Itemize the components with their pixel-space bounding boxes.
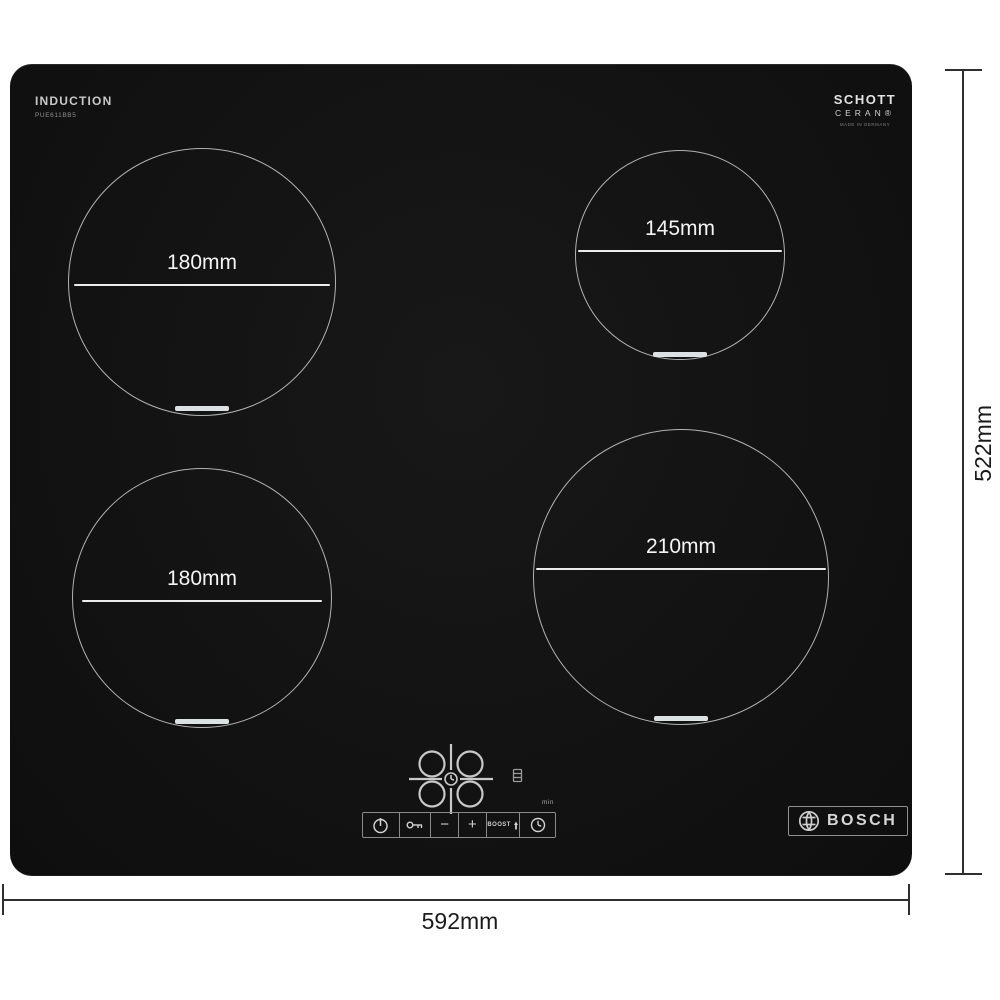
dimension-tick [945, 69, 982, 71]
zone-notch-mark [654, 716, 708, 721]
schott-ceran-logo: SCHOTT CERAN® MADE IN GERMANY [810, 92, 920, 127]
schott-logo-text: SCHOTT [810, 92, 920, 107]
bosch-logo-plate: BOSCH [788, 806, 908, 836]
dimension-tick [908, 884, 910, 915]
zone-diameter-label: 210mm [533, 535, 829, 559]
zone-ring [72, 468, 332, 728]
zone-ring [575, 150, 785, 360]
indicator-icon [512, 768, 523, 783]
bosch-emblem-icon [798, 810, 820, 832]
model-number: PUE611BB5 [35, 112, 112, 119]
zone-notch-mark [653, 352, 707, 357]
product-dimension-diagram: INDUCTION PUE611BB5 SCHOTT CERAN® MADE I… [0, 0, 1000, 1000]
power-key [363, 813, 399, 837]
minus-key: − [430, 813, 458, 837]
plus-label: + [468, 817, 477, 834]
boost-label: BOOST [487, 822, 510, 828]
key-icon [406, 820, 424, 830]
zone-diameter-label: 180mm [72, 567, 332, 591]
induction-branding: INDUCTION PUE611BB5 [35, 94, 112, 119]
boost-key: BOOST [486, 813, 520, 837]
zone-diameter-label: 180mm [68, 251, 336, 275]
dimension-tick [945, 873, 982, 875]
timer-unit-label: min [510, 799, 554, 806]
zone-selector-diagram [401, 741, 501, 817]
timer-key [519, 813, 555, 837]
glass-origin-text: MADE IN GERMANY [810, 122, 920, 127]
boost-icon [513, 821, 519, 830]
width-dimension-line [3, 899, 909, 901]
bosch-logo-text: BOSCH [827, 812, 897, 830]
plus-key: + [458, 813, 486, 837]
induction-hob-glass: INDUCTION PUE611BB5 SCHOTT CERAN® MADE I… [10, 64, 912, 876]
touch-control-strip: − + BOOST [362, 812, 556, 838]
power-icon [372, 817, 389, 834]
cooking-zone-front-right: 210mm [533, 429, 829, 725]
depth-dimension-line [962, 70, 964, 874]
width-dimension-label: 592mm [380, 908, 540, 935]
clock-icon [530, 817, 546, 833]
zone-ring [533, 429, 829, 725]
cooking-zone-rear-right: 145mm [575, 150, 785, 360]
dimension-tick [2, 884, 4, 915]
ceran-logo-text: CERAN® [810, 108, 920, 118]
childlock-key [399, 813, 431, 837]
minus-label: − [440, 817, 449, 834]
cooking-zone-front-left: 180mm [72, 468, 332, 728]
zone-diameter-label: 145mm [575, 217, 785, 241]
cooking-zone-rear-left: 180mm [68, 148, 336, 416]
zone-notch-mark [175, 719, 229, 724]
zone-ring [68, 148, 336, 416]
zone-selector-icon [401, 741, 501, 817]
depth-dimension-label: 522mm [970, 405, 997, 482]
induction-label: INDUCTION [35, 94, 112, 108]
zone-notch-mark [175, 406, 229, 411]
